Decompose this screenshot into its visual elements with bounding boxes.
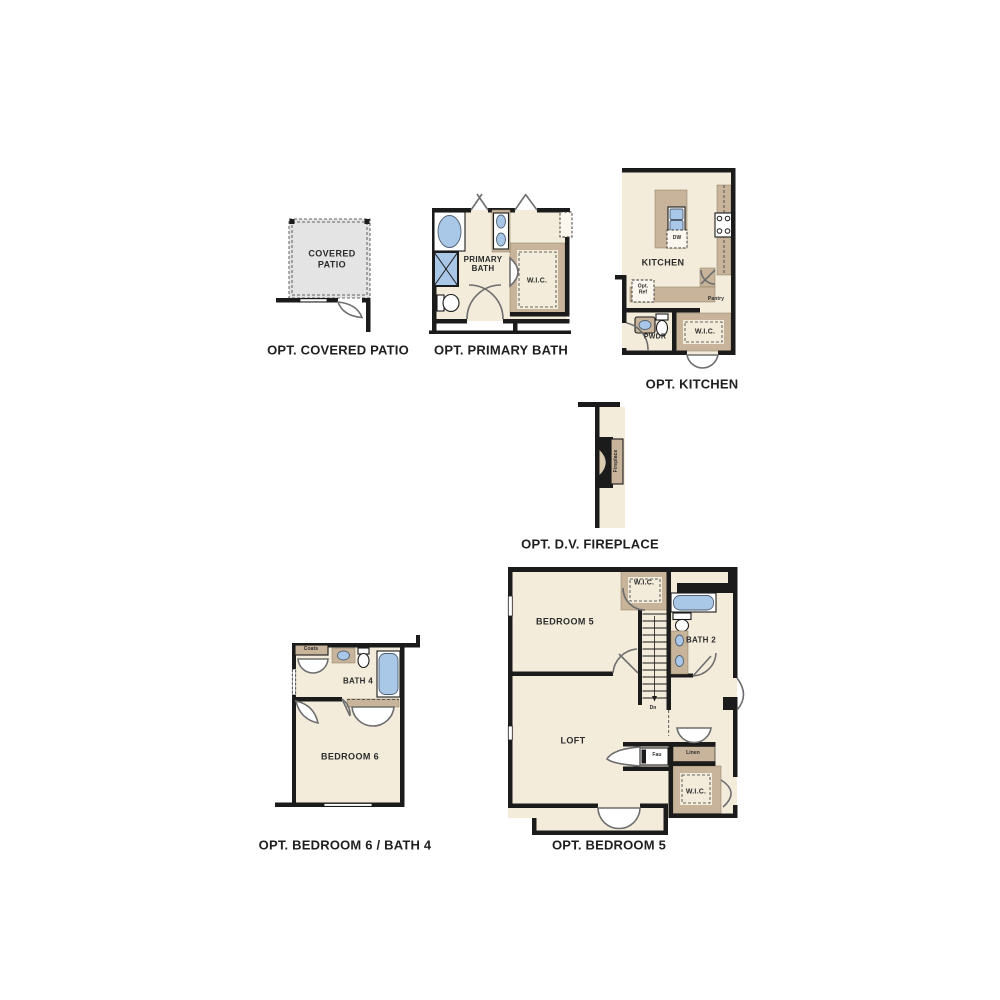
window [324,804,372,807]
optional-wall-dashed [292,669,295,695]
fireplace-caption: OPT. D.V. FIREPLACE [521,537,659,552]
bedroom5-wic-lower-label: W.I.C. [686,789,706,796]
optional-opening [560,212,572,237]
powder-room [635,314,668,336]
covered-patio-plan [270,212,380,334]
fireplace-drawing [575,395,635,535]
island [655,190,687,248]
stairs-dn-label: Dn [650,706,657,712]
covered-patio-caption: OPT. COVERED PATIO [267,343,409,358]
double-vanity [492,210,510,252]
bedroom6-drawing [272,635,422,813]
primary-bath-wic-label: W.I.C. [527,278,547,285]
bathtub [671,593,716,612]
toilet [437,295,459,312]
bedroom5-drawing [503,560,743,842]
window [508,726,512,740]
door-swing [338,302,362,318]
bathtub [377,651,400,697]
linen-label: Linen [686,751,700,757]
bedroom5-plan [503,560,743,842]
bedroom6-plan [272,635,422,813]
kitchen-room-label: KITCHEN [642,258,685,269]
kitchen-pantry-label: Pantry [708,297,724,303]
closet-band [347,699,399,707]
range [715,213,732,237]
bathtub [434,212,465,251]
bath2-label: BATH 2 [684,635,718,644]
kitchen-opt-ref-label: Opt. Ref [635,284,651,296]
bedroom5-wic-upper-label: W.I.C. [634,580,654,587]
kitchen-caption: OPT. KITCHEN [646,377,739,392]
bedroom6-room-label: BEDROOM 6 [321,752,379,763]
floorplan-options-sheet: COVERED PATIO OPT. COVERED PATIO [0,0,1000,1000]
primary-bath-caption: OPT. PRIMARY BATH [434,343,568,358]
bedroom5-room-label: BEDROOM 5 [536,617,594,628]
wic-upper [621,570,669,610]
primary-bath-room-label: PRIMARY BATH [454,255,512,273]
fireplace-unit-label: Fireplace [614,450,620,473]
coats-label: Coats [304,647,318,653]
toilet [358,648,369,668]
bedroom6-caption: OPT. BEDROOM 6 / BATH 4 [259,838,432,853]
kitchen-dw-label: DW [673,236,682,242]
kitchen-wic-label: W.I.C. [695,329,715,336]
fireplace-plan [575,395,635,535]
sink-vanity [332,648,355,663]
covered-patio-drawing [270,212,380,334]
covered-patio-room-label: COVERED PATIO [300,248,364,269]
window [300,299,327,302]
loft-room-label: LOFT [560,736,585,747]
bath4-label: BATH 4 [341,676,375,685]
bedroom5-caption: OPT. BEDROOM 5 [552,838,666,853]
kitchen-pwdr-label: PWDR [644,334,666,341]
fau-label: Fau [652,753,661,759]
window [508,596,512,616]
